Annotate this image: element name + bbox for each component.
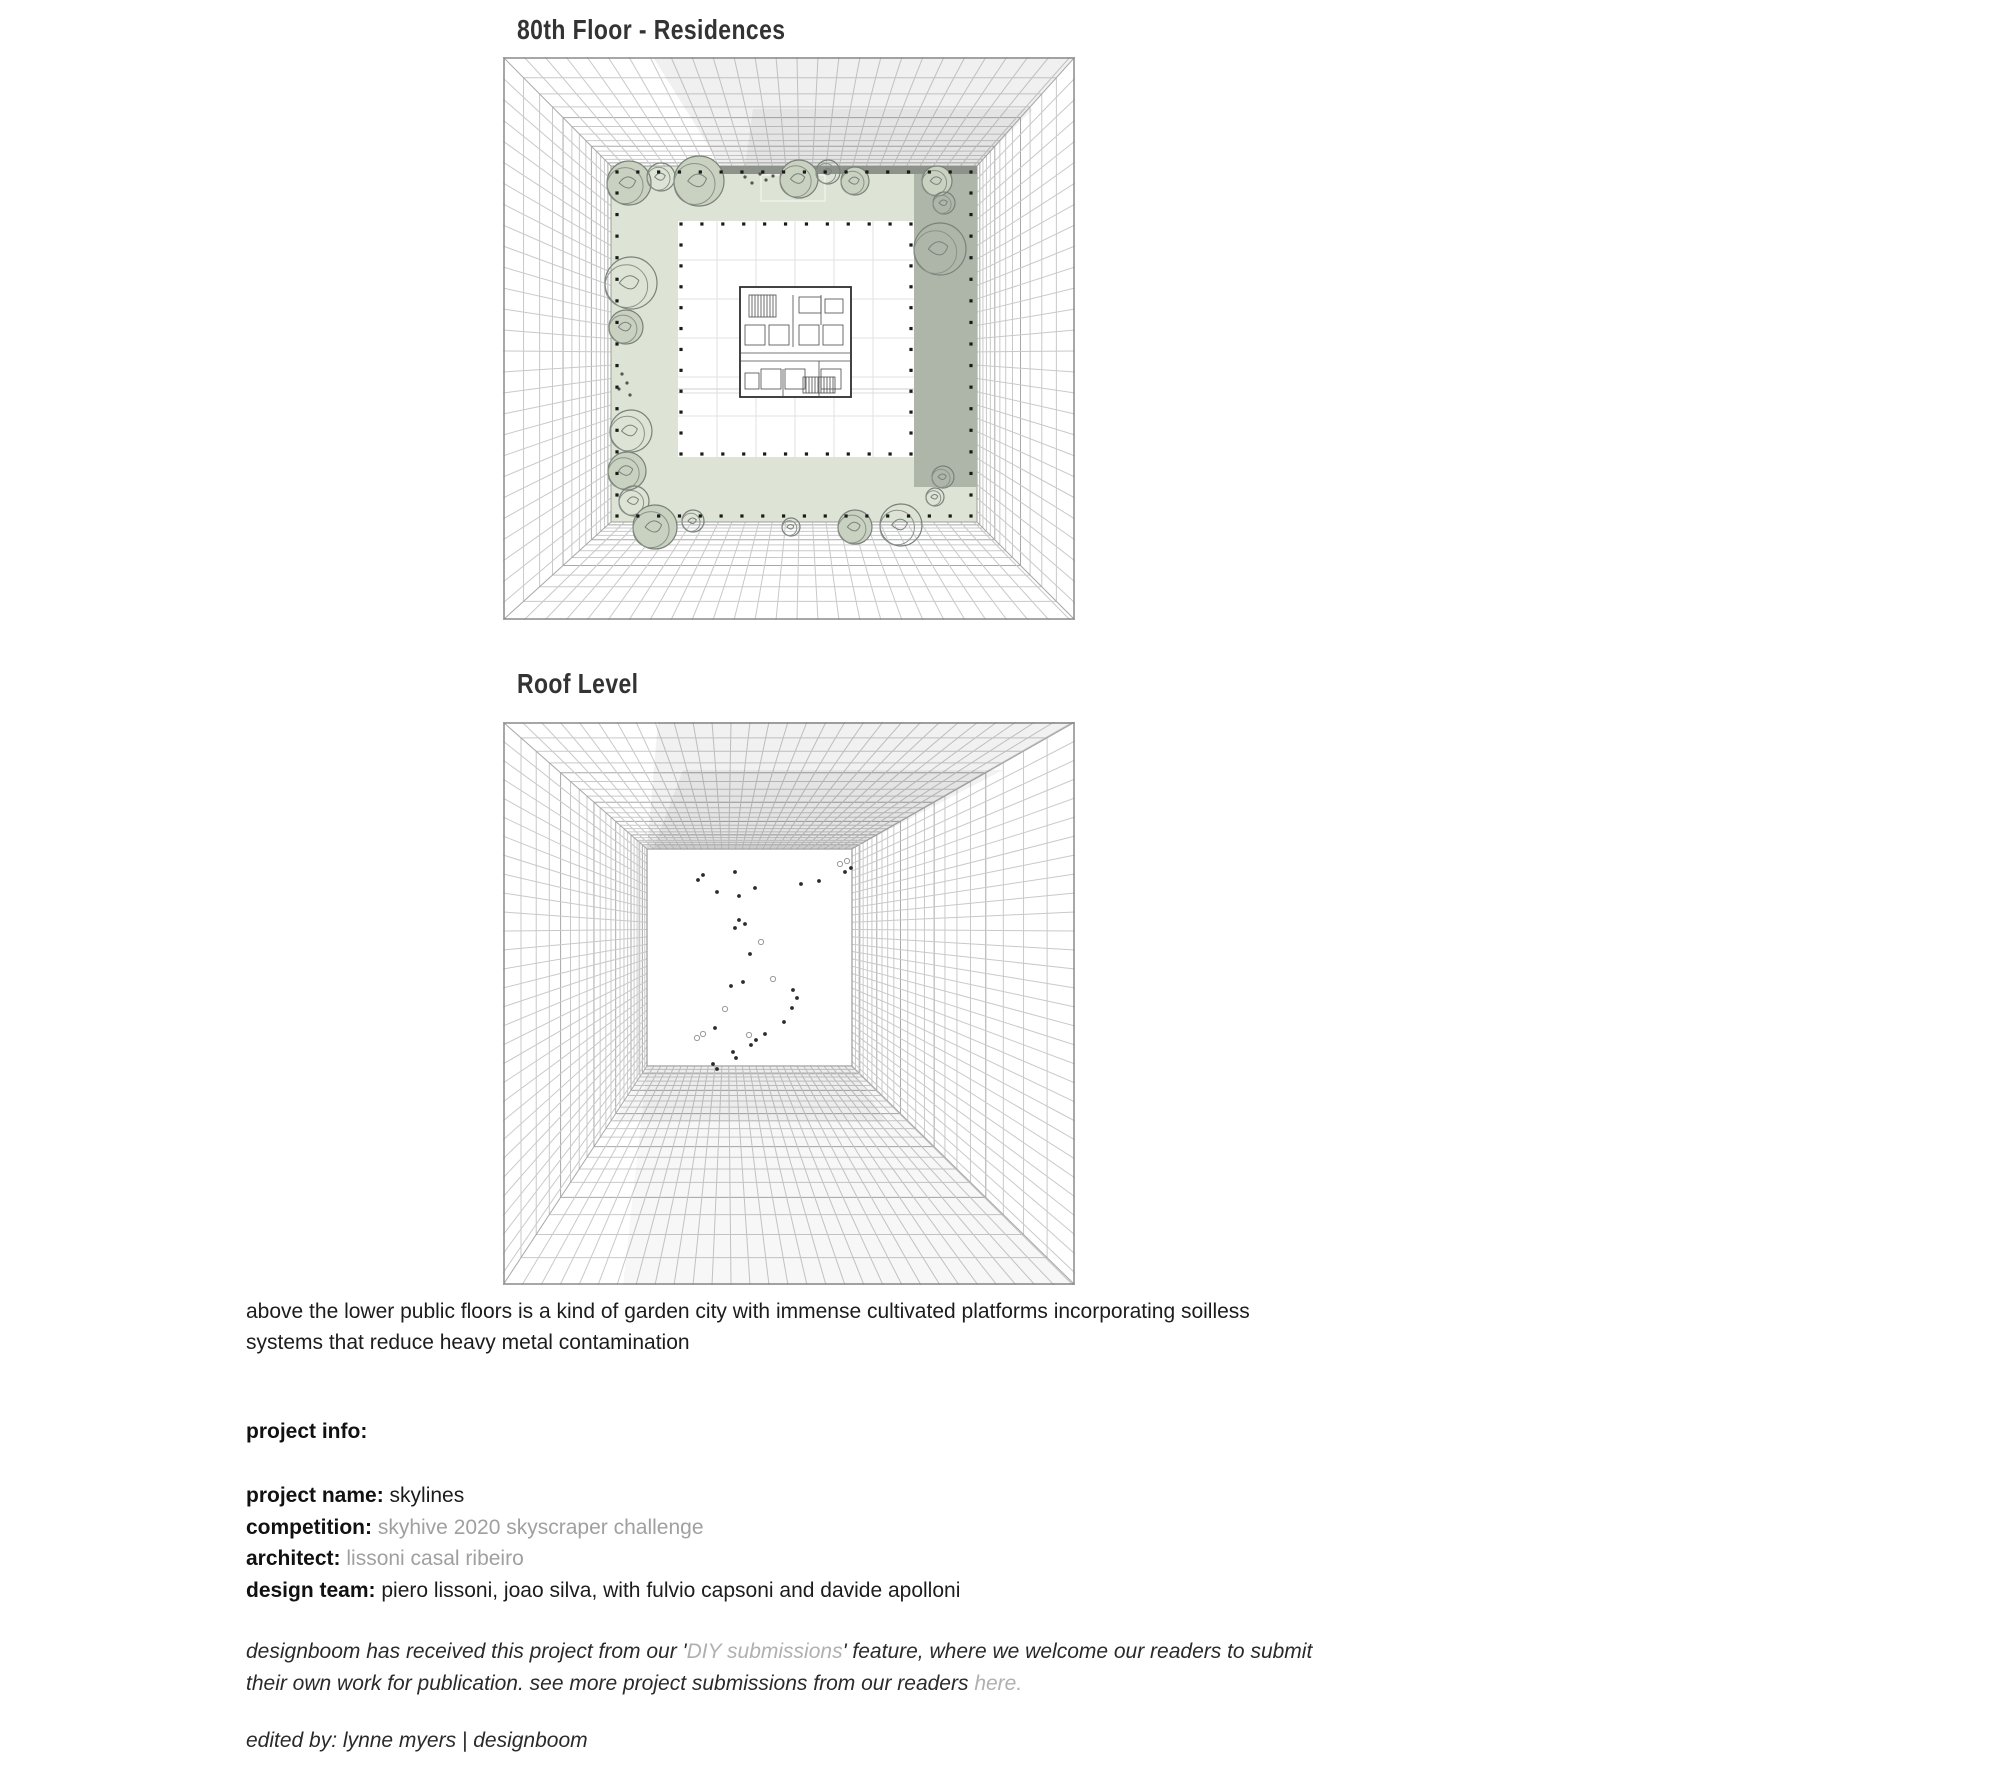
floor-plan-drawing-80th-floor (503, 57, 1075, 620)
competition-label: competition: (246, 1516, 372, 1539)
project-info-list: project name: skylines competition: skyh… (246, 1480, 960, 1606)
competition-link[interactable]: skyhive 2020 skyscraper challenge (372, 1516, 704, 1539)
note-text-1: designboom has received this project fro… (246, 1640, 687, 1663)
project-name-label: project name: (246, 1484, 384, 1507)
note-text-3: their own work for publication. see more… (246, 1672, 974, 1695)
design-team-value: piero lissoni, joao silva, with fulvio c… (376, 1579, 961, 1602)
project-name-row: project name: skylines (246, 1480, 960, 1512)
here-link[interactable]: here. (974, 1672, 1022, 1695)
roof-level-drawing (503, 722, 1075, 1285)
figure-2-title: Roof Level (517, 668, 638, 700)
design-team-row: design team: piero lissoni, joao silva, … (246, 1575, 960, 1607)
competition-row: competition: skyhive 2020 skyscraper cha… (246, 1512, 960, 1544)
image-caption: above the lower public floors is a kind … (246, 1296, 1250, 1358)
submission-note: designboom has received this project fro… (246, 1636, 1312, 1700)
project-name-value: skylines (384, 1484, 465, 1507)
caption-line-1: above the lower public floors is a kind … (246, 1300, 1250, 1323)
architect-row: architect: lissoni casal ribeiro (246, 1543, 960, 1575)
article-page: 80th Floor - Residences Roof Level above… (0, 0, 2000, 1780)
design-team-label: design team: (246, 1579, 376, 1602)
architect-link[interactable]: lissoni casal ribeiro (341, 1547, 524, 1570)
caption-line-2: systems that reduce heavy metal contamin… (246, 1331, 690, 1354)
figure-1-title: 80th Floor - Residences (517, 14, 785, 46)
architect-label: architect: (246, 1547, 341, 1570)
diy-submissions-link[interactable]: DIY submissions (687, 1640, 843, 1663)
project-info-heading: project info: (246, 1420, 367, 1444)
editor-byline: edited by: lynne myers | designboom (246, 1729, 588, 1753)
note-text-2: ' feature, where we welcome our readers … (843, 1640, 1313, 1663)
